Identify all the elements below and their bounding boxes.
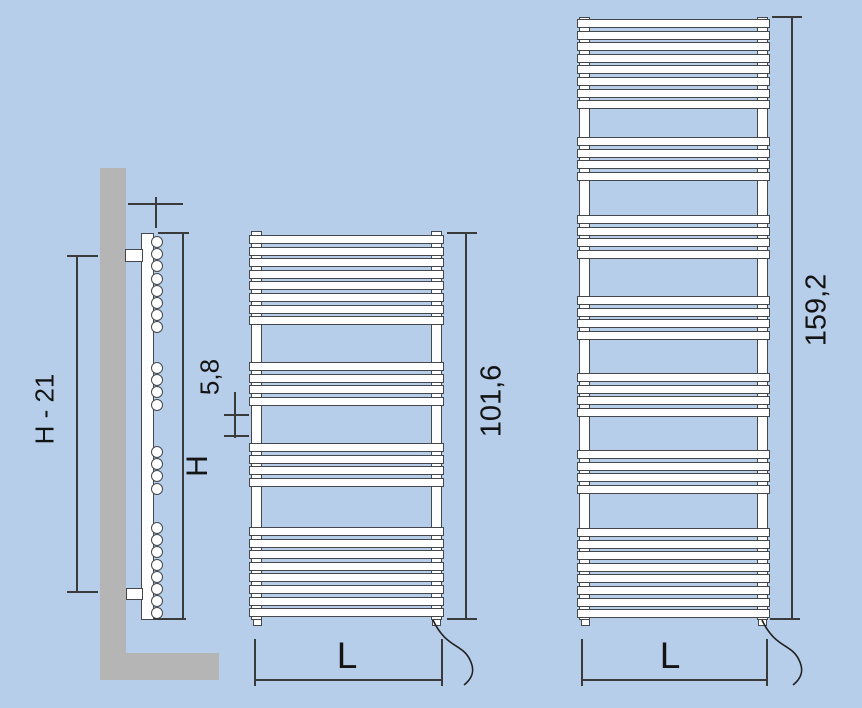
tall-radiator-bars — [0, 0, 862, 708]
radiator-technical-diagram: H - 21 H 5,8 101,6 L 159,2 L — [0, 0, 862, 708]
radiator-bar — [577, 77, 770, 86]
radiator-bar — [577, 89, 770, 98]
label-159-2: 159,2 — [801, 274, 834, 347]
radiator-bar — [577, 65, 770, 74]
radiator-bar — [577, 319, 770, 328]
dim-l-tall-tick-right — [766, 639, 768, 686]
radiator-bar — [577, 574, 770, 583]
radiator-bar — [577, 540, 770, 549]
radiator-bar — [577, 586, 770, 595]
dim-1592-line — [791, 17, 793, 620]
radiator-bar — [577, 563, 770, 572]
radiator-bar — [577, 19, 770, 28]
radiator-bar — [577, 296, 770, 305]
radiator-bar — [577, 485, 770, 494]
radiator-bar — [577, 396, 770, 405]
dim-l-tall-line — [582, 679, 768, 681]
dim-l-tall-tick-left — [581, 639, 583, 686]
label-l-tall: L — [660, 635, 681, 677]
radiator-bar — [577, 54, 770, 63]
radiator-bar — [577, 149, 770, 158]
radiator-bar — [577, 160, 770, 169]
radiator-bar — [577, 227, 770, 236]
dim-1592-tick-bottom — [770, 618, 800, 620]
radiator-bar — [577, 528, 770, 537]
radiator-bar — [577, 42, 770, 51]
radiator-bar — [577, 598, 770, 607]
radiator-bar — [577, 172, 770, 181]
radiator-bar — [577, 551, 770, 560]
radiator-bar — [577, 308, 770, 317]
radiator-bar — [577, 250, 770, 259]
radiator-bar — [577, 473, 770, 482]
radiator-bar — [577, 31, 770, 40]
radiator-bar — [577, 462, 770, 471]
radiator-bar — [577, 137, 770, 146]
radiator-bar — [577, 450, 770, 459]
dim-1592-tick-top — [772, 16, 802, 18]
radiator-bar — [577, 609, 770, 618]
radiator-bar — [577, 238, 770, 247]
radiator-bar — [577, 100, 770, 109]
radiator-bar — [577, 408, 770, 417]
radiator-bar — [577, 215, 770, 224]
radiator-bar — [577, 373, 770, 382]
radiator-bar — [577, 385, 770, 394]
radiator-bar — [577, 331, 770, 340]
